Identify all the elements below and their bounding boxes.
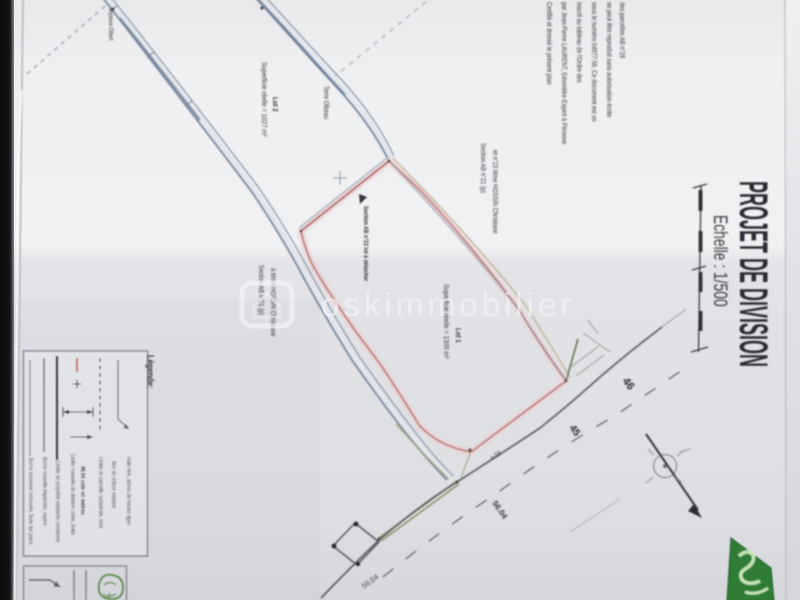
svg-text:oskimmobilier: oskimmobilier (321, 287, 575, 324)
svg-text:Légende:: Légende: (145, 355, 156, 388)
svg-text:Haie vive, arbres de hautes ti: Haie vive, arbres de hautes tiges (125, 457, 132, 525)
svg-text:Lot 2: Lot 2 (271, 97, 279, 112)
svg-text:Borne ancienne retrouvée, fixé: Borne ancienne retrouvée, fixée sur plac… (27, 458, 34, 545)
svg-text:Terre Olbeau: Terre Olbeau (322, 86, 330, 120)
svg-text:Lot 1: Lot 1 (454, 328, 462, 343)
svg-text:Echelle : 1/500: Echelle : 1/500 (709, 215, 731, 307)
svg-text:Section AB n°21 (p): Section AB n°21 (p) (257, 265, 266, 315)
svg-text:Impasse Olbert: Impasse Olbert (107, 8, 114, 41)
svg-text:Mur de clôture existant: Mur de clôture existant (110, 461, 117, 509)
svg-text:par Jean-Pierre LAURENT, Géomè: par Jean-Pierre LAURENT, Géomètre-Expert… (560, 2, 568, 145)
svg-text:PROJET DE DIVISION: PROJET DE DIVISION (731, 181, 776, 367)
svg-text:Borne nouvelle implantée, repè: Borne nouvelle implantée, repère (41, 457, 48, 526)
svg-text:sous le numéro 04977-58. Ce do: sous le numéro 04977-58. Ce document est… (590, 2, 598, 122)
svg-text:Limite de parcelle cadastrale,: Limite de parcelle cadastrale, fond (97, 457, 104, 528)
svg-text:Limite nouvelle de division cr: Limite nouvelle de division créée, limit… (69, 454, 76, 535)
svg-text:Limite de propriété existante: Limite de propriété existante conservée (54, 461, 61, 543)
svg-text:Superficie réelle = 1027 m²: Superficie réelle = 1027 m² (260, 62, 268, 137)
svg-text:Section AB n°22 lot à détache: Section AB n°22 lot à détacher (362, 206, 369, 282)
svg-text:Certifié et dressé le présent: Certifié et dressé le présent plan (545, 2, 553, 85)
svg-text:46.04 cote en mètres: 46.04 cote en mètres (79, 466, 86, 515)
svg-text:Section AB n°21 (p): Section AB n°21 (p) (479, 143, 488, 193)
svg-text:ne peut être reproduit sans au: ne peut être reproduit sans autorisation… (605, 2, 613, 118)
svg-text:inscrit au tableau de l'Ordre: inscrit au tableau de l'Ordre des (575, 2, 583, 83)
svg-text:et n°23 Mme HOSSIN Christiane: et n°23 Mme HOSSIN Christiane (491, 150, 500, 234)
svg-text:des parcelles AB n°28: des parcelles AB n°28 (618, 2, 627, 59)
